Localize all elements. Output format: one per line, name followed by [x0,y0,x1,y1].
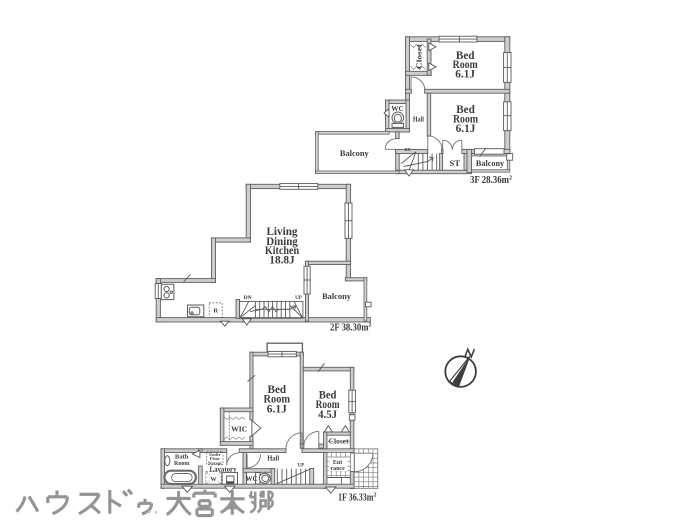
svg-text:1F 36.33m: 1F 36.33m [338,492,374,503]
svg-text:R: R [213,308,218,315]
svg-text:2: 2 [509,176,512,182]
svg-text:2: 2 [369,323,372,329]
svg-text:6.1J: 6.1J [456,122,476,135]
svg-text:6.1J: 6.1J [267,402,287,415]
svg-text:DN: DN [244,296,253,301]
svg-text:Room: Room [174,460,190,467]
svg-text:DN: DN [405,147,411,152]
svg-text:WIC: WIC [231,424,247,433]
svg-text:Closet: Closet [329,439,350,446]
svg-text:rance: rance [330,466,345,472]
svg-text:4.5J: 4.5J [318,408,337,421]
svg-text:3F 28.36m: 3F 28.36m [470,175,509,186]
svg-text:6.1J: 6.1J [455,67,475,80]
svg-text:18.8J: 18.8J [269,252,294,266]
svg-text:Balcony: Balcony [476,159,505,168]
svg-text:Hall: Hall [413,115,424,124]
svg-text:UP: UP [297,462,305,468]
svg-text:Lavatory: Lavatory [210,465,237,473]
svg-text:2F 38.30m: 2F 38.30m [330,322,369,333]
svg-text:Hall: Hall [267,454,279,463]
svg-text:2: 2 [374,493,377,499]
svg-text:W: W [210,476,217,483]
svg-text:Balcony: Balcony [322,292,352,301]
svg-text:UP: UP [295,296,302,301]
svg-text:Balcony: Balcony [340,149,370,158]
svg-text:WC: WC [391,105,403,113]
svg-text:ST: ST [450,158,461,168]
svg-text:WC: WC [246,476,258,483]
svg-text:Closet: Closet [414,43,423,69]
